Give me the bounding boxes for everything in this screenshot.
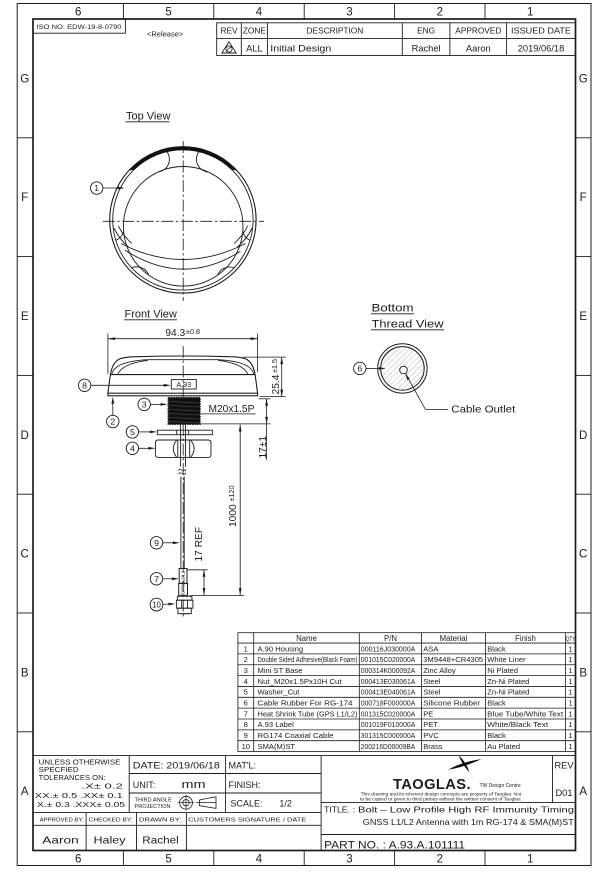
- svg-text:mm: mm: [182, 779, 206, 791]
- svg-text:White/Black Text: White/Black Text: [487, 720, 549, 729]
- svg-text:REV: REV: [554, 760, 574, 770]
- svg-text:4: 4: [256, 854, 263, 866]
- svg-text:Black: Black: [487, 699, 506, 708]
- svg-text:5: 5: [165, 6, 171, 18]
- svg-text:9: 9: [154, 538, 159, 548]
- svg-text:UNLESS OTHERWISE: UNLESS OTHERWISE: [39, 760, 121, 767]
- svg-text:Steel: Steel: [423, 688, 441, 697]
- svg-text:3: 3: [244, 666, 248, 675]
- svg-text:000413E030061A: 000413E030061A: [361, 677, 416, 686]
- svg-text:1: 1: [568, 720, 572, 729]
- svg-text:G: G: [20, 73, 29, 85]
- svg-text:CUSTOMERS SIGNATURE / DATE: CUSTOMERS SIGNATURE / DATE: [188, 818, 306, 824]
- svg-text:9: 9: [244, 731, 248, 740]
- svg-text:Bolt – Low Profile High RF Imm: Bolt – Low Profile High RF Immunity Timi…: [358, 805, 574, 815]
- svg-text:Blue Tube/White Text: Blue Tube/White Text: [487, 709, 564, 718]
- svg-text:Zinc Alloy: Zinc Alloy: [423, 666, 456, 675]
- svg-text:2: 2: [437, 6, 443, 18]
- svg-text:REV: REV: [220, 26, 238, 36]
- svg-text:F: F: [580, 192, 587, 204]
- svg-text:±0.8: ±0.8: [186, 327, 200, 336]
- svg-text:5: 5: [165, 854, 171, 866]
- svg-text:1: 1: [568, 699, 572, 708]
- svg-text:5: 5: [244, 688, 248, 697]
- svg-text:7: 7: [154, 574, 159, 584]
- svg-text:A.93 Label: A.93 Label: [258, 720, 295, 729]
- svg-text:D: D: [21, 430, 29, 442]
- svg-text:.X± 0.2: .X± 0.2: [81, 783, 123, 790]
- svg-text:1000: 1000: [228, 504, 239, 527]
- svg-text:B: B: [579, 667, 587, 679]
- svg-text:Finish: Finish: [515, 634, 536, 643]
- svg-text:DATE: 2019/06/18: DATE: 2019/06/18: [133, 760, 220, 770]
- svg-text:6: 6: [244, 699, 248, 708]
- svg-text:17±1: 17±1: [258, 436, 269, 459]
- svg-text:A: A: [579, 786, 587, 798]
- svg-text:Bottom: Bottom: [372, 302, 414, 314]
- svg-text:001019F010000A: 001019F010000A: [361, 720, 416, 729]
- svg-text:1: 1: [568, 709, 572, 718]
- svg-text:UNIT:: UNIT:: [133, 780, 156, 790]
- svg-text:10: 10: [242, 742, 250, 751]
- svg-text:000116J030000A: 000116J030000A: [361, 644, 416, 653]
- svg-text:SPECFIED: SPECFIED: [39, 767, 79, 774]
- svg-text:001315C020000A: 001315C020000A: [361, 709, 416, 718]
- svg-text:SCALE:: SCALE:: [231, 799, 263, 809]
- svg-text:SMA(M)ST: SMA(M)ST: [258, 742, 296, 751]
- svg-text:6: 6: [357, 364, 362, 374]
- svg-text:3: 3: [346, 854, 352, 866]
- svg-text:PE: PE: [423, 709, 433, 718]
- svg-text:1: 1: [94, 183, 99, 193]
- svg-text:D01: D01: [555, 788, 572, 798]
- svg-text:1: 1: [568, 666, 572, 675]
- svg-text:Haley: Haley: [94, 835, 126, 846]
- svg-text:Material: Material: [440, 634, 468, 643]
- svg-text:000314K000092A: 000314K000092A: [361, 666, 416, 675]
- svg-text:4: 4: [244, 677, 248, 686]
- svg-text:This drawing and its inherent: This drawing and its inherent design con…: [361, 791, 522, 797]
- svg-text:Front View: Front View: [125, 308, 177, 320]
- svg-text:PVC: PVC: [423, 731, 439, 740]
- svg-text:A.90 Housing: A.90 Housing: [258, 644, 304, 653]
- svg-text:ENG: ENG: [417, 26, 435, 36]
- svg-text:6: 6: [75, 854, 81, 866]
- svg-text:1: 1: [244, 644, 248, 653]
- svg-text:P/N: P/N: [384, 634, 397, 643]
- svg-text:DRAWN BY:: DRAWN BY:: [139, 818, 182, 824]
- svg-text:2: 2: [244, 655, 248, 664]
- svg-text:APPROVED: APPROVED: [455, 26, 501, 36]
- svg-text:ISSUED DATE: ISSUED DATE: [511, 26, 571, 36]
- svg-text:Aaron: Aaron: [466, 44, 491, 54]
- svg-text:Zn-Ni Plated: Zn-Ni Plated: [487, 688, 529, 697]
- svg-text:White Liner: White Liner: [487, 655, 526, 664]
- svg-text:ASA: ASA: [423, 644, 439, 653]
- svg-text:Silicone Rubber: Silicone Rubber: [423, 699, 481, 708]
- svg-text:ALL: ALL: [246, 44, 263, 54]
- svg-text:PET: PET: [423, 720, 438, 729]
- svg-text:7: 7: [244, 709, 248, 718]
- svg-text:A.93: A.93: [176, 380, 191, 389]
- svg-text:THIRD ANGLE: THIRD ANGLE: [135, 797, 173, 803]
- svg-text:Aaron: Aaron: [42, 835, 79, 846]
- svg-text:CHECKED BY:: CHECKED BY:: [89, 818, 133, 824]
- svg-text:Washer_Cut: Washer_Cut: [258, 688, 301, 697]
- svg-text:1: 1: [568, 655, 572, 664]
- svg-text:17 REF: 17 REF: [194, 527, 205, 562]
- svg-text:Zn-Ni Plated: Zn-Ni Plated: [487, 677, 529, 686]
- svg-text:TAOGLAS.: TAOGLAS.: [393, 777, 471, 793]
- svg-text:5: 5: [130, 427, 135, 437]
- svg-text:1: 1: [568, 644, 572, 653]
- svg-text:<Release>: <Release>: [147, 30, 184, 39]
- svg-text:2: 2: [110, 417, 115, 427]
- svg-text:1: 1: [568, 677, 572, 686]
- svg-text:D: D: [579, 430, 587, 442]
- svg-text:2: 2: [437, 854, 443, 866]
- svg-text:C: C: [21, 549, 29, 561]
- svg-text:F: F: [21, 192, 28, 204]
- svg-text:8: 8: [82, 381, 87, 391]
- svg-text:TW Design Centre: TW Design Centre: [480, 783, 521, 789]
- svg-text:2019/06/18: 2019/06/18: [518, 44, 565, 54]
- svg-text:Rachel: Rachel: [412, 44, 441, 54]
- svg-text:8: 8: [244, 720, 248, 729]
- svg-text:Cable Rubber For RG-174: Cable Rubber For RG-174: [258, 699, 353, 708]
- svg-text:3: 3: [346, 6, 352, 18]
- svg-text:Initial Design: Initial Design: [270, 44, 331, 54]
- svg-text:25.4: 25.4: [271, 374, 282, 394]
- svg-text:1: 1: [568, 742, 572, 751]
- svg-text:Black: Black: [487, 731, 506, 740]
- svg-text:XX.± 0.5 .XX± 0.1: XX.± 0.5 .XX± 0.1: [35, 793, 123, 800]
- svg-text:1/2: 1/2: [279, 799, 292, 809]
- svg-text:MAT'L:: MAT'L:: [229, 760, 257, 770]
- svg-text:Ni Plated: Ni Plated: [487, 666, 518, 675]
- svg-text:A: A: [21, 786, 29, 798]
- svg-text:E: E: [579, 311, 587, 323]
- svg-text:Top View: Top View: [126, 110, 170, 122]
- svg-text:FINISH:: FINISH:: [229, 780, 261, 790]
- svg-text:1: 1: [568, 731, 572, 740]
- svg-text:1: 1: [527, 854, 533, 866]
- svg-text:4: 4: [130, 444, 135, 454]
- svg-text:to be copied or given to third: to be copied or given to third parties w…: [360, 797, 522, 803]
- svg-text:Steel: Steel: [423, 677, 441, 686]
- svg-text:Au Plated: Au Plated: [487, 742, 520, 751]
- svg-text:Black: Black: [487, 644, 506, 653]
- svg-text:6: 6: [75, 6, 81, 18]
- svg-text:Thread View: Thread View: [372, 318, 444, 330]
- svg-text:94.3: 94.3: [165, 328, 185, 339]
- svg-text:1: 1: [527, 6, 533, 18]
- svg-text:TITLE.: TITLE.: [324, 805, 350, 815]
- svg-text::: :: [353, 805, 355, 815]
- svg-text:±1.5: ±1.5: [270, 359, 279, 373]
- svg-text:B: B: [21, 667, 29, 679]
- svg-text:1: 1: [568, 688, 572, 697]
- svg-text:X.± 0.3 .XXX± 0.05: X.± 0.3 .XXX± 0.05: [37, 802, 125, 809]
- svg-text:001015C020000A: 001015C020000A: [361, 655, 416, 664]
- svg-text:000718F000000A: 000718F000000A: [361, 699, 416, 708]
- svg-text:3M9448+CR4305: 3M9448+CR4305: [423, 655, 483, 664]
- svg-text:APPROVED BY:: APPROVED BY:: [40, 818, 84, 824]
- svg-text:PART NO. : A.93.A.101111: PART NO. : A.93.A.101111: [324, 839, 465, 851]
- svg-text:3: 3: [142, 400, 147, 410]
- svg-text:Cable Outlet: Cable Outlet: [451, 405, 515, 416]
- svg-text:QTY: QTY: [566, 636, 576, 643]
- svg-text:GPS L1/L2: GPS L1/L2: [181, 570, 186, 594]
- svg-text:Rachel: Rachel: [142, 835, 179, 846]
- svg-text:PROJECTION: PROJECTION: [135, 804, 171, 810]
- svg-text:200216D00009BA: 200216D00009BA: [361, 742, 416, 751]
- svg-text:Heat Shrink Tube (GPS L1/L2): Heat Shrink Tube (GPS L1/L2): [258, 709, 358, 718]
- svg-text:Mini ST Base: Mini ST Base: [258, 666, 303, 675]
- svg-text:E: E: [21, 311, 29, 323]
- svg-text:ZONE: ZONE: [243, 26, 267, 36]
- svg-text:Brass: Brass: [423, 742, 443, 751]
- svg-text:301315C000000A: 301315C000000A: [361, 731, 416, 740]
- svg-text:GNSS L1/L2 Antenna with 1m RG-: GNSS L1/L2 Antenna with 1m RG-174 & SMA(…: [363, 817, 575, 827]
- svg-text:ISO NO: EDW-19-8-0790: ISO NO: EDW-19-8-0790: [37, 24, 122, 31]
- svg-text:RG174 Coaxial Cable: RG174 Coaxial Cable: [258, 731, 334, 740]
- svg-text:DESCRIPTION: DESCRIPTION: [307, 26, 364, 36]
- svg-text:Double Sided Adhesive(Black Fo: Double Sided Adhesive(Black Foam): [258, 655, 358, 664]
- svg-text:000413E040061A: 000413E040061A: [361, 688, 416, 697]
- svg-text:TOLERANCES ON:: TOLERANCES ON:: [39, 775, 106, 782]
- svg-text:Nut_M20x1.5Px10H Cut: Nut_M20x1.5Px10H Cut: [258, 677, 343, 686]
- svg-text:C: C: [579, 549, 587, 561]
- svg-text:Name: Name: [296, 634, 317, 643]
- svg-text:4: 4: [256, 6, 263, 18]
- svg-text:±120: ±120: [227, 486, 236, 502]
- svg-text:10: 10: [152, 601, 161, 610]
- svg-text:G: G: [579, 73, 588, 85]
